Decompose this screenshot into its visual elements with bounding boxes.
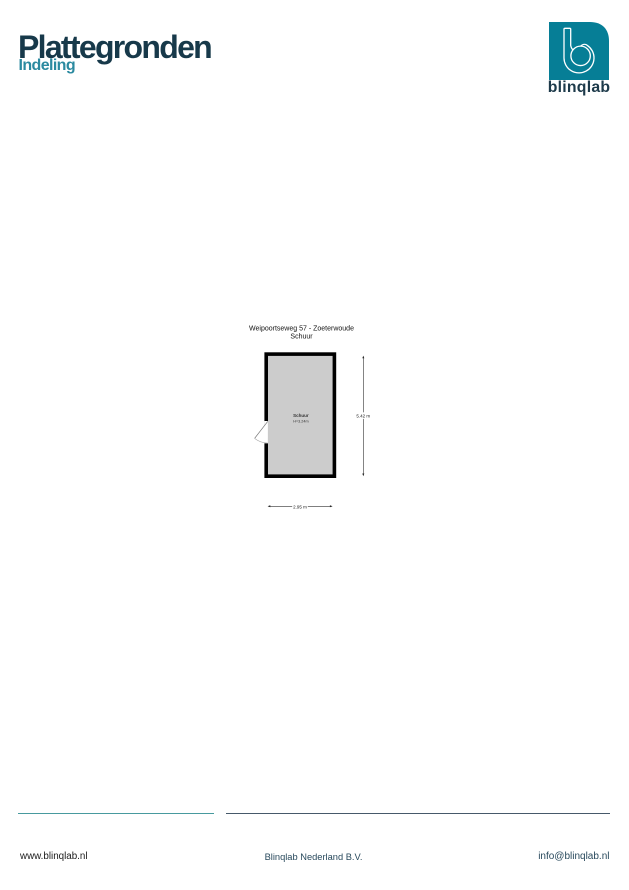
svg-text:Schuur: Schuur	[293, 413, 309, 418]
svg-text:Schuur: Schuur	[290, 334, 313, 341]
svg-text:Weipoortseweg 57 - Zoeterwoude: Weipoortseweg 57 - Zoeterwoude	[249, 326, 354, 333]
svg-text:H=3.24m: H=3.24m	[293, 420, 308, 424]
svg-text:5.42 m: 5.42 m	[356, 413, 370, 418]
svg-text:2.95 m: 2.95 m	[293, 504, 307, 509]
